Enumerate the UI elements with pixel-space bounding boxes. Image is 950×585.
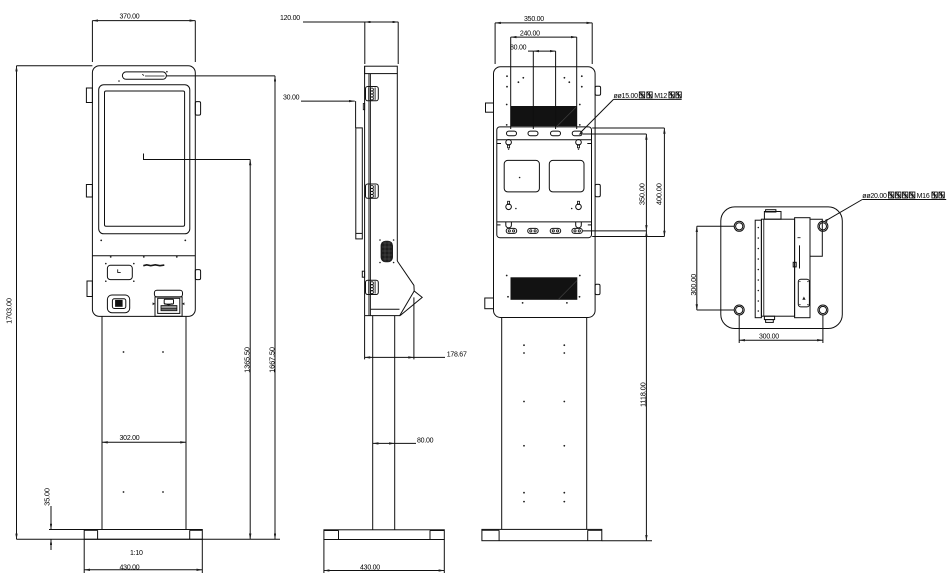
svg-text:120.00: 120.00	[280, 15, 300, 22]
svg-text:M12: M12	[654, 93, 667, 100]
svg-text:430.00: 430.00	[360, 564, 380, 571]
svg-text:300.00: 300.00	[689, 274, 698, 296]
svg-text:80.00: 80.00	[417, 437, 434, 444]
svg-text:370.00: 370.00	[120, 14, 140, 21]
svg-text:302.00: 302.00	[120, 435, 140, 442]
svg-text:30.00: 30.00	[283, 95, 300, 102]
svg-text:400.00: 400.00	[654, 183, 663, 205]
svg-text:1703.00: 1703.00	[5, 298, 14, 324]
svg-text:240.00: 240.00	[520, 30, 540, 37]
svg-text:øø15.00: øø15.00	[614, 93, 639, 100]
svg-text:øø20.00: øø20.00	[862, 193, 887, 200]
svg-text:1667.50: 1667.50	[267, 347, 276, 373]
svg-text:1365.50: 1365.50	[243, 347, 252, 373]
svg-text:350.00: 350.00	[524, 16, 544, 23]
svg-text:80.00: 80.00	[510, 45, 527, 52]
svg-text:1118.00: 1118.00	[639, 382, 648, 407]
svg-text:1:10: 1:10	[130, 550, 143, 557]
svg-text:M16: M16	[917, 193, 930, 200]
svg-text:300.00: 300.00	[759, 334, 779, 341]
svg-text:35.00: 35.00	[43, 488, 52, 506]
svg-text:178.67: 178.67	[447, 352, 467, 359]
svg-text:350.00: 350.00	[637, 183, 646, 205]
